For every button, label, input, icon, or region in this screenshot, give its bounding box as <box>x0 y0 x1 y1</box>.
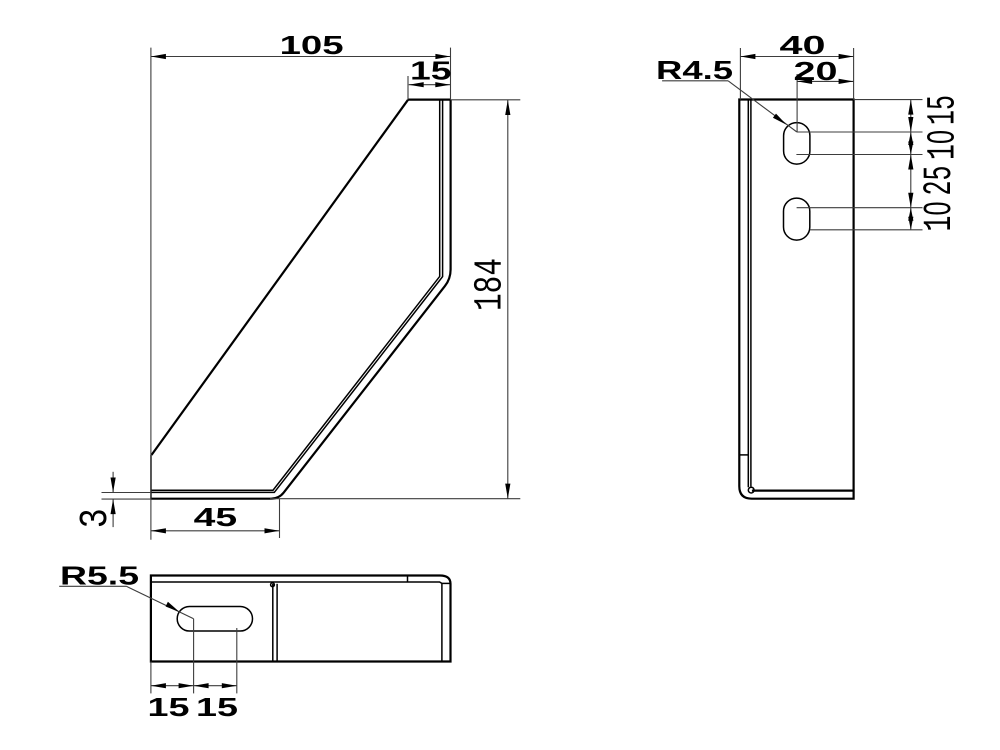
svg-text:184: 184 <box>469 258 514 311</box>
svg-text:15: 15 <box>148 692 190 722</box>
svg-text:105: 105 <box>280 30 344 60</box>
svg-text:15: 15 <box>410 55 452 85</box>
svg-text:3: 3 <box>74 508 119 528</box>
svg-text:25: 25 <box>918 166 963 196</box>
svg-text:10: 10 <box>921 130 967 160</box>
svg-text:R5.5: R5.5 <box>60 561 139 591</box>
svg-text:R4.5: R4.5 <box>656 55 733 85</box>
svg-text:20: 20 <box>794 56 838 86</box>
svg-text:10: 10 <box>917 202 963 232</box>
svg-text:45: 45 <box>194 502 238 532</box>
svg-text:15: 15 <box>922 95 967 125</box>
svg-text:15: 15 <box>196 692 238 722</box>
